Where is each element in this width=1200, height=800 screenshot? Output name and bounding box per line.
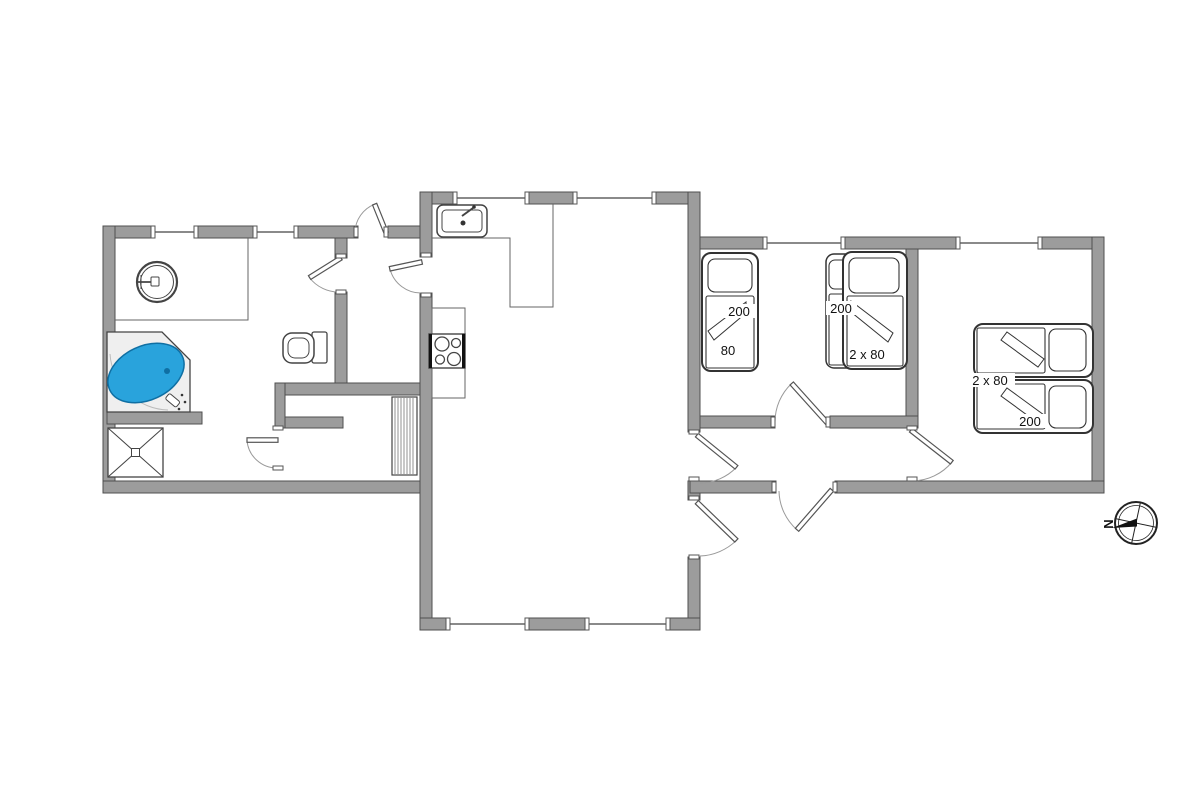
master-bedroom-door [907,426,953,481]
bed-twin-width-label: 2 x 80 [849,347,884,362]
kitchen-sink [437,205,487,237]
terrace-door [772,482,837,531]
wall [388,226,420,238]
wall [527,192,575,204]
bed-single-length-label: 200 [728,304,750,319]
living-exterior-door [689,496,738,559]
wall [296,226,358,238]
front-door [354,203,388,237]
wall [830,416,918,428]
toilet [283,332,327,363]
shower-hall-door [247,426,283,470]
floor-plan-page: 200 80 200 2 x 80 2 x 80 200 N [0,0,1200,800]
wall [275,383,285,428]
wall [700,416,775,428]
interior-walls [107,238,918,428]
shower [108,428,163,477]
kids-bedroom-door [771,382,830,427]
floor-plan: 200 80 200 2 x 80 2 x 80 200 N [0,0,1200,800]
window [763,237,845,249]
bed-single: 200 80 [702,253,758,371]
stove [429,334,465,368]
wall [668,618,700,630]
window [453,192,529,204]
compass-north-label: N [1101,519,1116,528]
stairs [392,397,417,475]
bed-twin: 200 2 x 80 [826,252,907,369]
exterior-walls [103,192,1104,630]
wall [688,192,700,432]
bed-single-width-label: 80 [721,343,735,358]
window [253,226,298,238]
window [151,226,198,238]
washbasin [115,238,248,320]
wall [103,481,420,493]
wall [275,383,420,395]
entry-kitchen-door [389,253,431,297]
bed-twin-length-label: 200 [830,301,852,316]
wall [420,192,432,257]
living-hall-door [689,430,738,483]
window [585,618,670,630]
wall [835,481,1104,493]
wall [107,412,202,424]
wall [285,417,343,428]
compass-icon: N [1101,502,1157,544]
wall [420,618,448,630]
wall [335,292,347,395]
window [573,192,656,204]
wall [700,237,765,249]
wall [843,237,958,249]
jacuzzi [98,332,193,415]
window [956,237,1042,249]
bed-master-width-label: 2 x 80 [972,373,1007,388]
wall [527,618,587,630]
wall [196,226,255,238]
bathroom-door [308,254,346,294]
bed-master: 2 x 80 200 [966,324,1093,433]
window [446,618,529,630]
bed-master-length-label: 200 [1019,414,1041,429]
